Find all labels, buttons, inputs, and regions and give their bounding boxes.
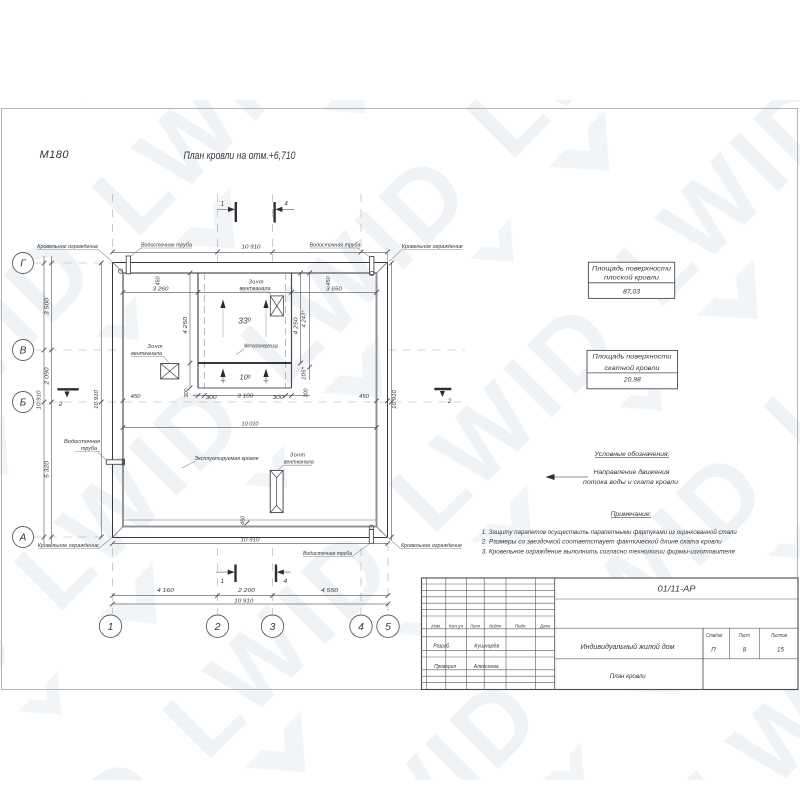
svg-text:1: 1 (108, 621, 114, 633)
svg-text:5 320: 5 320 (44, 460, 50, 478)
svg-text:1: 1 (220, 201, 224, 208)
svg-text:вентканала: вентканала (131, 351, 162, 357)
svg-text:Примечание:: Примечание: (611, 511, 652, 518)
svg-text:3 500: 3 500 (44, 297, 50, 315)
svg-text:Дата: Дата (539, 624, 550, 629)
svg-text:4: 4 (283, 578, 287, 585)
svg-text:3 100: 3 100 (237, 393, 254, 399)
svg-text:Кушнарёв: Кушнарёв (474, 644, 499, 650)
svg-text:105*: 105* (302, 366, 308, 380)
svg-text:4 243*: 4 243* (301, 310, 307, 328)
svg-text:А: А (19, 533, 27, 544)
svg-text:Зонт: Зонт (290, 453, 306, 459)
svg-text:5: 5 (385, 621, 391, 633)
svg-text:В: В (20, 346, 27, 357)
svg-text:Кровельное ограждение: Кровельное ограждение (401, 543, 462, 549)
svg-text:87,03: 87,03 (623, 288, 641, 295)
svg-text:Водосточная труба: Водосточная труба (310, 242, 361, 248)
svg-text:3 260: 3 260 (153, 287, 170, 293)
svg-text:Кровельное ограждение: Кровельное ограждение (38, 543, 99, 549)
svg-text:№док: №док (489, 624, 502, 629)
svg-text:Лист: Лист (738, 633, 750, 639)
svg-text:450: 450 (131, 394, 141, 400)
svg-text:труба: труба (81, 446, 97, 452)
svg-text:10 910: 10 910 (37, 390, 43, 410)
svg-text:Зонт: Зонт (148, 344, 164, 350)
svg-text:300: 300 (304, 388, 310, 397)
svg-text:Кровельное ограждение: Кровельное ограждение (402, 244, 463, 250)
svg-text:вентканала: вентканала (284, 460, 314, 466)
svg-text:2 200: 2 200 (237, 588, 256, 594)
svg-text:2 090: 2 090 (44, 367, 50, 386)
svg-text:8: 8 (743, 646, 747, 653)
svg-text:Условные обозначения:: Условные обозначения: (593, 450, 669, 458)
svg-text:Б: Б (20, 398, 27, 409)
svg-text:20,98: 20,98 (623, 376, 642, 383)
svg-text:Кол.уч: Кол.уч (449, 624, 464, 629)
svg-text:300: 300 (206, 395, 217, 401)
svg-text:1. Защиту парапетов осуществит: 1. Защиту парапетов осуществить парапетн… (482, 528, 737, 536)
svg-text:Разраб.: Разраб. (433, 644, 450, 650)
svg-text:300: 300 (273, 395, 284, 401)
svg-text:10 910: 10 910 (234, 599, 254, 605)
svg-text:10 910: 10 910 (94, 389, 100, 409)
svg-text:4: 4 (358, 621, 364, 633)
svg-text:Индивидуальный жилой дом: Индивидуальный жилой дом (581, 643, 675, 651)
svg-text:10 910: 10 910 (392, 389, 398, 409)
svg-text:4 160: 4 160 (157, 588, 175, 594)
svg-text:Алексеева: Алексеева (473, 664, 499, 670)
svg-text:450: 450 (156, 276, 162, 285)
svg-text:Кровельное ограждение: Кровельное ограждение (37, 244, 98, 250)
svg-text:2: 2 (447, 398, 452, 405)
svg-text:Водосточная: Водосточная (64, 439, 100, 445)
svg-text:3. Кровельное ограждение выпол: 3. Кровельное ограждение выполнить согла… (482, 547, 736, 555)
svg-text:Листов: Листов (770, 633, 787, 639)
svg-text:плоской кровли: плоской кровли (604, 274, 660, 281)
svg-text:2. Размеры со звездочкой соотв: 2. Размеры со звездочкой соответствует ф… (481, 538, 723, 546)
svg-text:4 550: 4 550 (321, 588, 339, 594)
svg-text:450: 450 (240, 516, 246, 525)
svg-text:4 250: 4 250 (294, 317, 300, 335)
svg-text:1: 1 (220, 578, 224, 585)
svg-text:План кровли: План кровли (610, 673, 647, 680)
svg-text:3 650: 3 650 (326, 287, 343, 293)
svg-text:450: 450 (326, 276, 332, 285)
svg-text:15: 15 (777, 646, 784, 653)
svg-text:4: 4 (284, 201, 288, 208)
svg-text:10 910: 10 910 (242, 245, 262, 251)
svg-text:2: 2 (58, 401, 63, 408)
svg-text:300: 300 (184, 388, 190, 397)
svg-text:Водосточная труба: Водосточная труба (303, 551, 352, 557)
svg-text:10 010: 10 010 (242, 422, 260, 428)
svg-text:Зонт: Зонт (249, 279, 265, 285)
svg-text:скатной кровли: скатной кровли (605, 365, 661, 372)
svg-text:Лист: Лист (469, 624, 480, 629)
svg-text:Площадь поверхности: Площадь поверхности (593, 353, 673, 360)
svg-text:Изм.: Изм. (431, 624, 441, 629)
svg-text:П: П (711, 646, 716, 653)
svg-text:Эксплуатируемая кровля: Эксплуатируемая кровля (195, 456, 259, 462)
svg-text:М180: М180 (40, 149, 70, 161)
svg-text:потока воды и ската кровли: потока воды и ската кровли (583, 478, 679, 486)
svg-text:План кровли на отм.+6,710: План кровли на отм.+6,710 (184, 150, 297, 162)
svg-text:2: 2 (214, 621, 221, 633)
svg-text:450: 450 (359, 394, 369, 400)
svg-text:Площадь поверхности: Площадь поверхности (592, 266, 672, 273)
svg-text:Проверил: Проверил (434, 664, 456, 670)
svg-text:4 250: 4 250 (183, 316, 189, 334)
svg-text:Направление движения: Направление движения (594, 468, 671, 476)
svg-text:Водосточная труба: Водосточная труба (141, 242, 192, 248)
svg-text:01/11-АР: 01/11-АР (658, 584, 696, 594)
svg-text:3: 3 (270, 621, 276, 633)
svg-text:Стадия: Стадия (706, 633, 722, 639)
svg-text:Металлочерепица: Металлочерепица (244, 344, 278, 350)
svg-text:Подп.: Подп. (515, 624, 527, 629)
svg-text:10 910: 10 910 (241, 537, 261, 543)
